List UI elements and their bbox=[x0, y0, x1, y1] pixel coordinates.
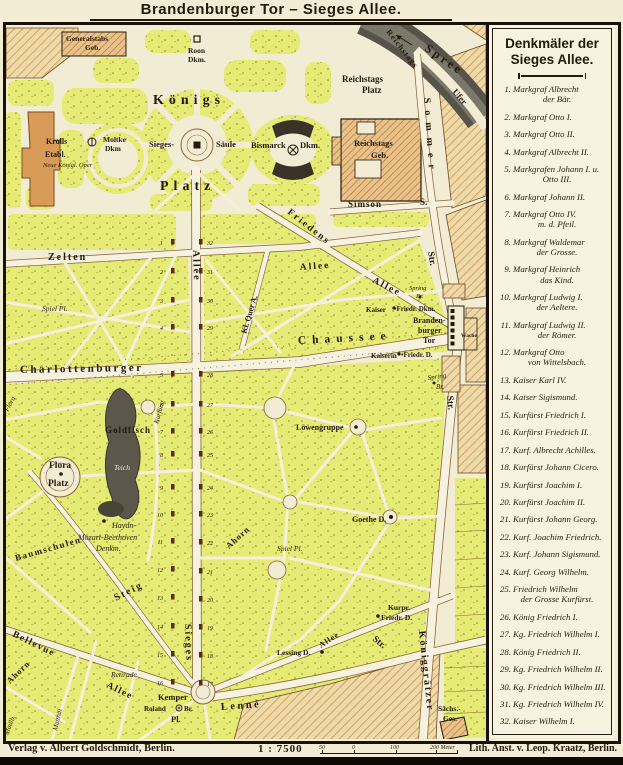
legend-inner-frame: Denkmäler der Sieges Allee. 1.Markgraf A… bbox=[492, 28, 612, 735]
legend-entry: 16.Kurfürst Friedrich II. bbox=[497, 427, 609, 437]
loewengruppe-site bbox=[350, 419, 366, 435]
map-label: Allee bbox=[300, 261, 331, 273]
legend-entry-text: Markgraf Otto bbox=[513, 347, 565, 357]
legend-entry-text: Kg. Friedrich Wilhelm IV. bbox=[513, 699, 604, 709]
legend-entry: 19.Kurfürst Joachim I. bbox=[497, 480, 609, 490]
map-label: Br. bbox=[416, 293, 424, 300]
map-label: Platz bbox=[48, 479, 69, 489]
legend-title-line1: Denkmäler der bbox=[493, 36, 611, 52]
monument-marker bbox=[171, 401, 175, 407]
legend-entry-text: Markgraf Albrecht II. bbox=[513, 147, 589, 157]
monument-number: 4 bbox=[160, 325, 163, 332]
legend-entry-number: 30. bbox=[497, 682, 511, 692]
legend-entry: 27.Kg. Friedrich Wilhelm I. bbox=[497, 629, 609, 639]
monument-marker bbox=[199, 624, 203, 630]
map-label: Branden- bbox=[413, 316, 446, 325]
monument-marker bbox=[171, 297, 175, 303]
legend-entry-number: 5. bbox=[497, 164, 511, 174]
legend-entry-text: Friedrich Wilhelm bbox=[513, 584, 578, 594]
legend-entry: 31.Kg. Friedrich Wilhelm IV. bbox=[497, 699, 609, 709]
legend-panel: Denkmäler der Sieges Allee. 1.Markgraf A… bbox=[489, 25, 615, 738]
legend-entry-line2: der Römer. bbox=[497, 330, 609, 340]
legend-entry: 3.Markgraf Otto II. bbox=[497, 129, 609, 139]
monument-marker bbox=[199, 596, 203, 602]
legend-entry: 12.Markgraf Ottovon Wittelsbach. bbox=[497, 347, 609, 367]
legend-entry-text: Kg. Friedrich Wilhelm III. bbox=[513, 682, 606, 692]
legend-entry-text: König Friedrich I. bbox=[513, 612, 578, 622]
map-label: Charlottenburger bbox=[20, 362, 144, 376]
monument-number: 32 bbox=[206, 241, 213, 247]
legend-entry-text: König Friedrich II. bbox=[513, 647, 581, 657]
monument-number: 23 bbox=[207, 513, 213, 519]
legend-entry-text: Kurfürst Joachim II. bbox=[513, 497, 585, 507]
monument-marker bbox=[171, 651, 175, 657]
legend-entry-number: 13. bbox=[497, 375, 511, 385]
legend-entry-number: 1. bbox=[497, 84, 511, 94]
legend-entry: 18.Kurfürst Johann Cicero. bbox=[497, 462, 609, 472]
monument-marker bbox=[199, 371, 203, 377]
monument-number: 19 bbox=[207, 626, 213, 632]
monument-marker bbox=[171, 324, 175, 330]
map-label: Königs bbox=[153, 93, 225, 108]
monument-number: 12 bbox=[157, 568, 163, 574]
scale-label: 50 bbox=[319, 745, 325, 751]
monument-number: 8 bbox=[160, 453, 163, 459]
monument-number: 26 bbox=[207, 430, 213, 436]
legend-entry: 11.Markgraf Ludwig II.der Römer. bbox=[497, 320, 609, 340]
legend-entry: 13.Kaiser Karl IV. bbox=[497, 375, 609, 385]
map-label: Haydn- bbox=[111, 521, 136, 530]
monument-marker bbox=[199, 324, 203, 330]
map-label: Spring bbox=[409, 285, 427, 292]
lithographer-imprint: Lith. Anst. v. Leop. Kraatz, Berlin. bbox=[469, 743, 617, 754]
legend-entry: 9.Markgraf Heinrichdas Kind. bbox=[497, 264, 609, 284]
legend-entry-number: 11. bbox=[497, 320, 511, 330]
map-label: Goldfisch bbox=[105, 425, 151, 435]
map-label: Roon bbox=[188, 46, 206, 55]
legend-entry-text: Kurfürst Friedrich I. bbox=[513, 410, 586, 420]
legend-entry-number: 3. bbox=[497, 129, 511, 139]
legend-entry-number: 15. bbox=[497, 410, 511, 420]
map-page: { "palette":{"paper":"#f3ecd4","park":"#… bbox=[0, 0, 623, 765]
legend-entry-number: 9. bbox=[497, 264, 511, 274]
legend-title-line2: Sieges Allee. bbox=[493, 52, 611, 68]
map-label: Dkm. bbox=[188, 55, 206, 64]
legend-entry-line2: Otto III. bbox=[497, 174, 609, 184]
monument-number: 16 bbox=[157, 681, 163, 687]
legend-entry-number: 27. bbox=[497, 629, 511, 639]
map-label: Sieges- bbox=[149, 139, 174, 149]
legend-entry-number: 16. bbox=[497, 427, 511, 437]
legend-entry-text: Markgraf Otto I. bbox=[513, 112, 572, 122]
monument-marker bbox=[171, 451, 175, 457]
monument-marker bbox=[199, 539, 203, 545]
map-label: Etabl. bbox=[45, 150, 66, 159]
legend-entry-number: 4. bbox=[497, 147, 511, 157]
map-label: •Friedr. Dkm. bbox=[394, 305, 436, 313]
legend-entry-text: Markgraf Ludwig I. bbox=[513, 292, 583, 302]
monument-number: 13 bbox=[157, 596, 163, 602]
scale-bar: 50 0 100 200 Meter bbox=[318, 743, 460, 755]
legend-entry: 24.Kurf. Georg Wilhelm. bbox=[497, 567, 609, 577]
monument-number: 27 bbox=[207, 403, 214, 409]
legend-entry-line2: der Grosse. bbox=[497, 247, 609, 257]
monument-marker bbox=[171, 594, 175, 600]
monument-marker bbox=[199, 239, 203, 245]
monument-marker bbox=[171, 428, 175, 434]
map-label: Bismarck bbox=[251, 140, 286, 150]
legend-entry-text: Kg. Friedrich Wilhelm II. bbox=[513, 664, 603, 674]
monument-number: 30 bbox=[206, 299, 213, 305]
legend-entry-text: Kaiser Wilhelm I. bbox=[513, 716, 575, 726]
map-label: Friedr. D. bbox=[381, 613, 412, 622]
map-label: Br. bbox=[436, 383, 444, 391]
map-label: Dkm. bbox=[300, 140, 320, 150]
map-label: Neue Königl. Oper bbox=[42, 162, 93, 169]
map-label: Kemper bbox=[158, 692, 188, 702]
legend-entry-text: Markgraf Otto II. bbox=[513, 129, 575, 139]
legend-entry: 28.König Friedrich II. bbox=[497, 647, 609, 657]
legend-entry-number: 20. bbox=[497, 497, 511, 507]
legend-entry-text: Markgraf Heinrich bbox=[513, 264, 580, 274]
legend-entry-number: 19. bbox=[497, 480, 511, 490]
map-label: Kaiserin bbox=[371, 352, 397, 360]
map-label: Geb. bbox=[371, 150, 388, 160]
legend-entry: 4.Markgraf Albrecht II. bbox=[497, 147, 609, 157]
legend-entry: 1.Markgraf Albrechtder Bär. bbox=[497, 84, 609, 104]
legend-entry: 8.Markgraf Waldemarder Grosse. bbox=[497, 237, 609, 257]
map-label: Ges. bbox=[443, 714, 457, 723]
legend-entry-number: 17. bbox=[497, 445, 511, 455]
legend-entry: 29.Kg. Friedrich Wilhelm II. bbox=[497, 664, 609, 674]
legend-entry-text: Markgraf Ludwig II. bbox=[513, 320, 586, 330]
legend-entry: 30.Kg. Friedrich Wilhelm III. bbox=[497, 682, 609, 692]
legend-entry-line2: m. d. Pfeil. bbox=[497, 219, 609, 229]
monument-number: 11 bbox=[157, 540, 163, 546]
legend-entry-line2: das Kind. bbox=[497, 275, 609, 285]
legend-entry-line2: der Aeltere. bbox=[497, 302, 609, 312]
legend-entry-text: Kaiser Sigismund. bbox=[513, 392, 578, 402]
map-title: Brandenburger Tor – Sieges Allee. bbox=[90, 1, 452, 21]
legend-entry-text: Kurfürst Friedrich II. bbox=[513, 427, 589, 437]
monument-marker bbox=[171, 623, 175, 629]
legend-entry-number: 12. bbox=[497, 347, 511, 357]
legend-entry-number: 29. bbox=[497, 664, 511, 674]
shrub-patch bbox=[98, 501, 124, 517]
map-label: Platz bbox=[160, 179, 215, 194]
legend-entry-number: 8. bbox=[497, 237, 511, 247]
roon-monument-icon bbox=[194, 36, 200, 42]
legend-entry-number: 10. bbox=[497, 292, 511, 302]
legend-entry-text: Kaiser Karl IV. bbox=[513, 375, 566, 385]
legend-entry-line2: der Bär. bbox=[497, 94, 609, 104]
monument-marker bbox=[171, 679, 175, 685]
legend-entry-line2: von Wittelsbach. bbox=[497, 357, 609, 367]
legend-entry-text: Kurf. Johann Sigismund. bbox=[513, 549, 600, 559]
legend-entry-text: Markgraf Otto IV. bbox=[513, 209, 576, 219]
monument-marker bbox=[199, 511, 203, 517]
map-label: S. bbox=[420, 197, 427, 207]
legend-entry: 10.Markgraf Ludwig I.der Aeltere. bbox=[497, 292, 609, 312]
legend-entry-number: 22. bbox=[497, 532, 511, 542]
monument-marker bbox=[171, 484, 175, 490]
map-label: Spiel Pl. bbox=[42, 304, 68, 313]
map-label: Kaiser bbox=[366, 306, 386, 314]
monument-number: 9 bbox=[160, 486, 163, 492]
legend-entry: 23.Kurf. Johann Sigismund. bbox=[497, 549, 609, 559]
monument-number: 20 bbox=[207, 598, 213, 604]
map-label: Teich bbox=[114, 463, 130, 472]
map-label: Wache bbox=[461, 333, 477, 339]
map-label: Lessing D. bbox=[277, 648, 310, 657]
legend-entry-line2: der Grosse Kurfürst. bbox=[497, 594, 609, 604]
legend-entry-number: 31. bbox=[497, 699, 511, 709]
monument-marker bbox=[199, 568, 203, 574]
legend-entry-text: Kurf. Albrecht Achilles. bbox=[513, 445, 596, 455]
map-label: Reichstags bbox=[354, 138, 393, 148]
legend-entry-number: 21. bbox=[497, 514, 511, 524]
monument-marker bbox=[199, 428, 203, 434]
legend-entry: 32.Kaiser Wilhelm I. bbox=[497, 716, 609, 726]
panel-divider bbox=[486, 22, 489, 741]
legend-entry-text: Kurf. Joachim Friedrich. bbox=[513, 532, 601, 542]
legend-entry-text: Kurf. Georg Wilhelm. bbox=[513, 567, 589, 577]
map-label: Sieges bbox=[182, 624, 194, 662]
map-label: Pl. bbox=[171, 714, 181, 724]
legend-entry-number: 14. bbox=[497, 392, 511, 402]
scale-label: 200 Meter bbox=[430, 745, 455, 751]
monument-marker bbox=[199, 652, 203, 658]
monument-marker bbox=[171, 566, 175, 572]
legend-title: Denkmäler der Sieges Allee. bbox=[493, 36, 611, 68]
legend-entry: 5.Markgrafen Johann I. u.Otto III. bbox=[497, 164, 609, 184]
legend-entry: 26.König Friedrich I. bbox=[497, 612, 609, 622]
map-label: Flora bbox=[49, 461, 71, 471]
legend-entry-number: 24. bbox=[497, 567, 511, 577]
legend-entry-number: 28. bbox=[497, 647, 511, 657]
legend-entry: 2.Markgraf Otto I. bbox=[497, 112, 609, 122]
monument-marker bbox=[199, 484, 203, 490]
monument-marker bbox=[199, 680, 203, 686]
legend-entry-text: Markgraf Waldemar bbox=[513, 237, 585, 247]
legend-entry-number: 7. bbox=[497, 209, 511, 219]
monument-number: 10 bbox=[157, 513, 163, 519]
monument-number: 17 bbox=[207, 682, 214, 688]
map-label: •Friedr. D. bbox=[401, 351, 433, 359]
monument-number: 2 bbox=[160, 270, 163, 276]
map-label: Krolls bbox=[46, 137, 67, 146]
footer: Verlag v. Albert Goldschmidt, Berlin. 1 … bbox=[0, 741, 623, 757]
map-label: Spiel Pl. bbox=[277, 544, 303, 553]
scale-label: 0 bbox=[352, 745, 355, 751]
map-label: Denkm. bbox=[95, 544, 121, 553]
map-label: Löwengruppe bbox=[296, 423, 344, 432]
legend-entry: 6.Markgraf Johann II. bbox=[497, 192, 609, 202]
monument-marker bbox=[171, 239, 175, 245]
legend-entry-text: Markgrafen Johann I. u. bbox=[513, 164, 599, 174]
map-label: Generalstabs bbox=[66, 34, 108, 43]
map-scale: 1 : 7500 bbox=[258, 743, 303, 755]
legend-entry-number: 32. bbox=[497, 716, 511, 726]
legend-entry-number: 18. bbox=[497, 462, 511, 472]
legend-entry: 25.Friedrich Wilhelmder Grosse Kurfürst. bbox=[497, 584, 609, 604]
monument-number: 14 bbox=[157, 624, 163, 631]
monument-number: 22 bbox=[207, 541, 213, 547]
legend-entry: 22.Kurf. Joachim Friedrich. bbox=[497, 532, 609, 542]
monument-marker bbox=[199, 297, 203, 303]
monument-number: 18 bbox=[207, 654, 213, 660]
map-label: Goethe D. bbox=[352, 515, 386, 524]
map-label: Br. bbox=[184, 705, 193, 713]
legend-entry: 15.Kurfürst Friedrich I. bbox=[497, 410, 609, 420]
bottom-border-bar bbox=[0, 757, 623, 765]
map-label: Str. bbox=[444, 395, 455, 410]
monument-number: 25 bbox=[207, 453, 213, 459]
map-label: burger bbox=[418, 326, 442, 335]
scale-tick bbox=[457, 750, 458, 754]
legend-entry-text: Kurfürst Johann Cicero. bbox=[513, 462, 599, 472]
monument-number: 5 bbox=[160, 373, 163, 379]
legend-entry: 7.Markgraf Otto IV.m. d. Pfeil. bbox=[497, 209, 609, 229]
monument-marker bbox=[171, 268, 175, 274]
legend-entry-number: 26. bbox=[497, 612, 511, 622]
legend-entry-text: Kg. Friedrich Wilhelm I. bbox=[513, 629, 600, 639]
monument-number: 15 bbox=[157, 653, 163, 659]
legend-entry: 14.Kaiser Sigismund. bbox=[497, 392, 609, 402]
map-label: Sächs.- bbox=[438, 704, 461, 713]
legend-entry-text: Markgraf Johann II. bbox=[513, 192, 585, 202]
legend-entry: 20.Kurfürst Joachim II. bbox=[497, 497, 609, 507]
map-canvas: 1234567891011121314151632313029282726252… bbox=[4, 23, 487, 739]
monument-marker bbox=[171, 538, 175, 544]
monument-number: 24 bbox=[207, 485, 213, 492]
map-label: Retirade bbox=[110, 670, 137, 679]
legend-entry-number: 6. bbox=[497, 192, 511, 202]
map-label: Säule bbox=[216, 139, 236, 149]
scale-bar-line bbox=[320, 753, 458, 754]
legend-entry-number: 2. bbox=[497, 112, 511, 122]
legend-entry-number: 25. bbox=[497, 584, 511, 594]
monument-marker bbox=[171, 511, 175, 517]
legend-entry-text: Kurfürst Johann Georg. bbox=[513, 514, 597, 524]
map-label: Mozart-Beethoven bbox=[77, 533, 137, 542]
map-label: Zelten bbox=[48, 252, 87, 263]
map-label: Dkm bbox=[105, 144, 122, 153]
map-label: Reichstags bbox=[342, 74, 383, 84]
publisher-imprint: Verlag v. Albert Goldschmidt, Berlin. bbox=[8, 743, 175, 754]
map-label: Tor bbox=[423, 336, 436, 345]
map-label: Kurpr. bbox=[388, 603, 410, 612]
monument-marker bbox=[199, 451, 203, 457]
monument-number: 31 bbox=[206, 270, 213, 276]
map-label: Moltke bbox=[103, 135, 127, 144]
legend-entry: 17.Kurf. Albrecht Achilles. bbox=[497, 445, 609, 455]
monument-number: 1 bbox=[160, 241, 163, 247]
map-label: Platz bbox=[362, 85, 382, 95]
map-label: Simson bbox=[348, 199, 382, 209]
monument-number: 29 bbox=[207, 326, 213, 332]
monument-marker bbox=[199, 401, 203, 407]
monument-marker bbox=[171, 371, 175, 377]
map-label: Allee bbox=[190, 250, 202, 282]
map-label: Geb. bbox=[85, 43, 100, 52]
legend-entry-text: Kurfürst Joachim I. bbox=[513, 480, 582, 490]
monument-number: 21 bbox=[207, 570, 213, 576]
map-label: Roland bbox=[144, 705, 166, 713]
legend-entry-number: 23. bbox=[497, 549, 511, 559]
legend-ornament bbox=[521, 75, 583, 77]
legend-entry: 21.Kurfürst Johann Georg. bbox=[497, 514, 609, 524]
siegessaeule-icon bbox=[194, 142, 201, 149]
scale-label: 100 bbox=[390, 745, 399, 751]
monument-number: 3 bbox=[159, 299, 163, 305]
legend-list: 1.Markgraf Albrechtder Bär.2.Markgraf Ot… bbox=[493, 81, 611, 734]
monument-number: 28 bbox=[207, 373, 213, 379]
legend-entry-text: Markgraf Albrecht bbox=[513, 84, 579, 94]
reichstag-building bbox=[332, 119, 421, 201]
